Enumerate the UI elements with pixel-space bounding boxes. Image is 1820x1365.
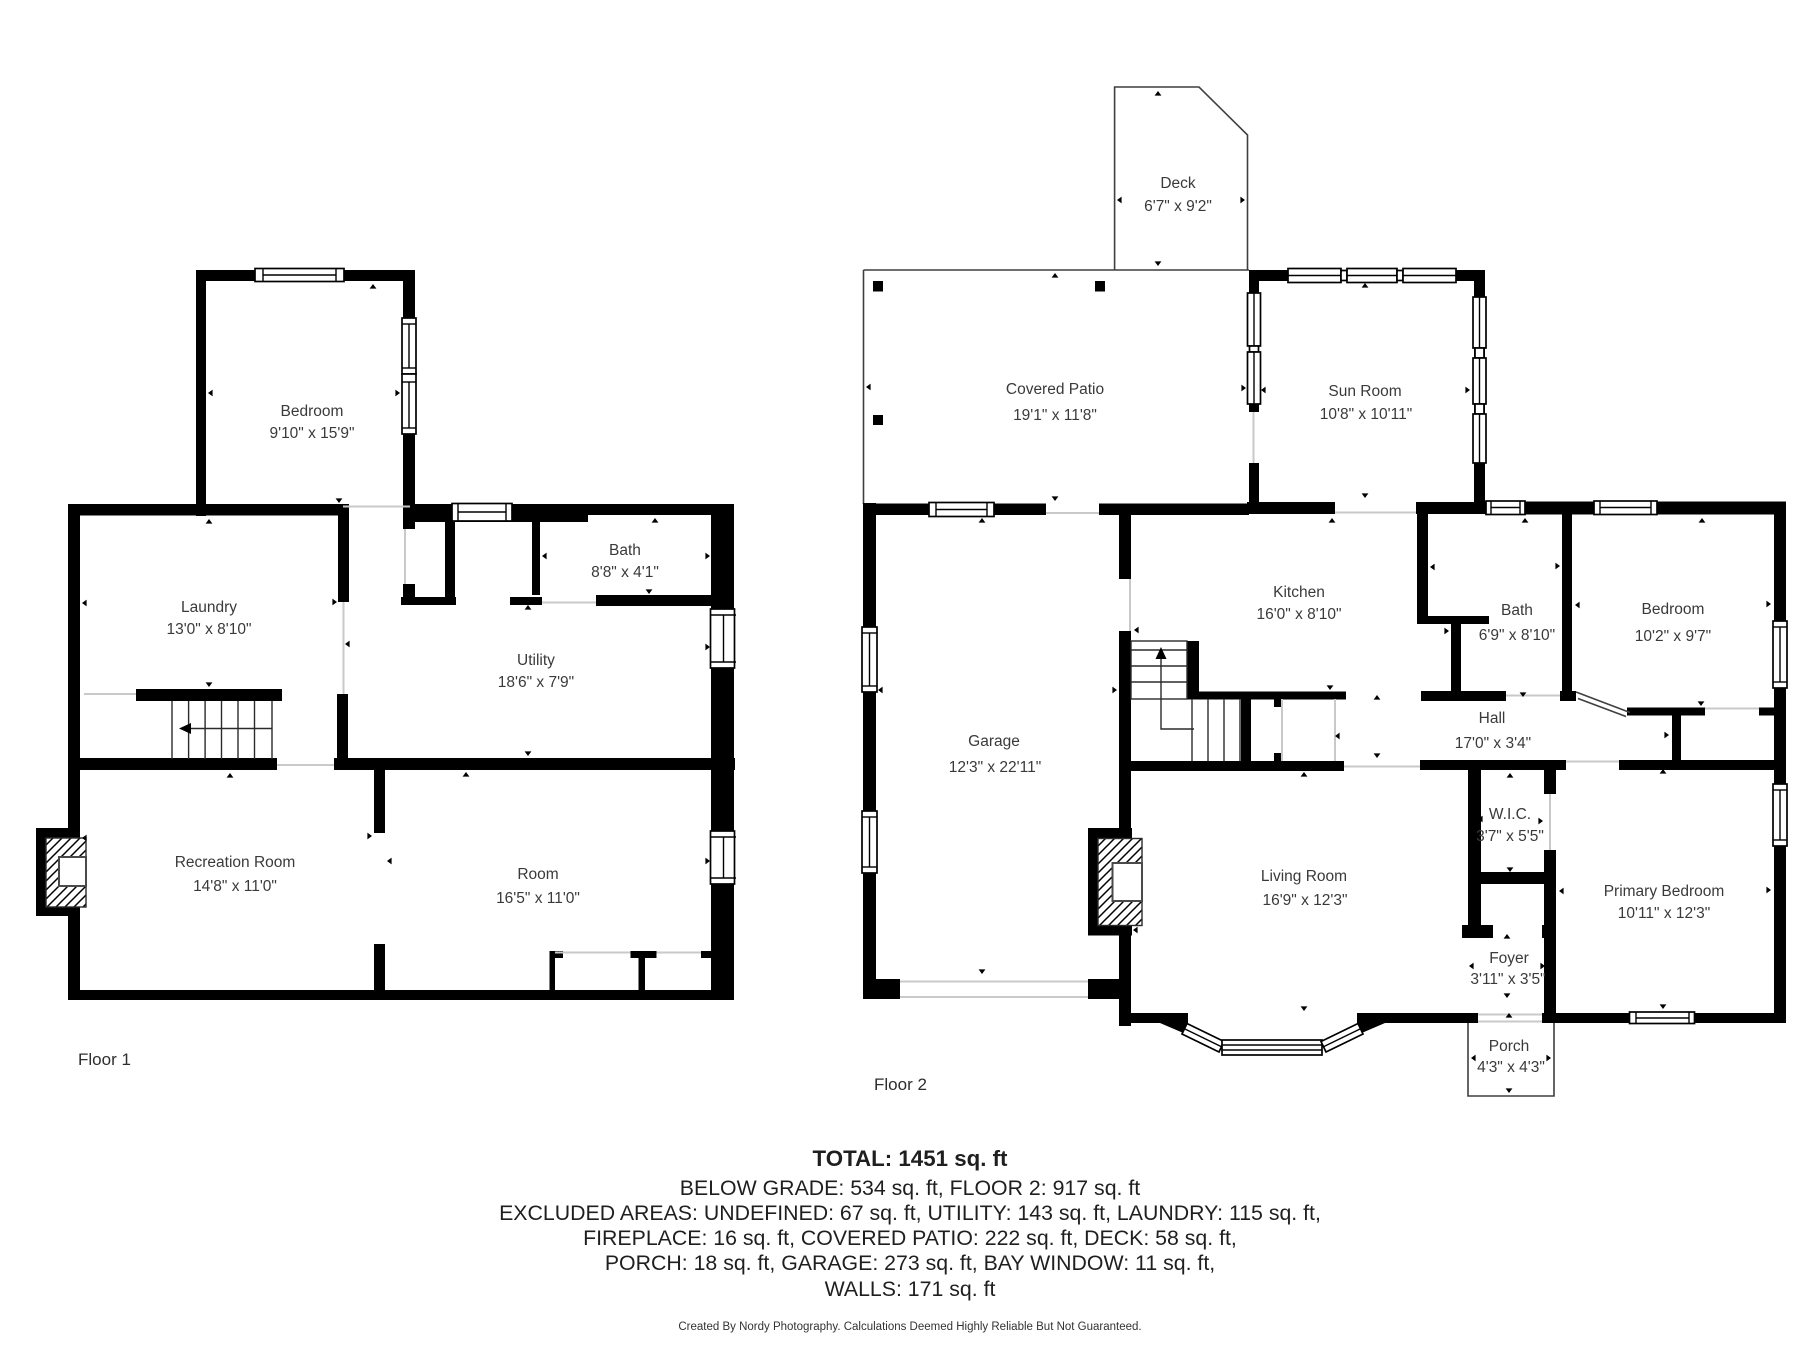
- svg-text:Bedroom: Bedroom: [281, 403, 344, 420]
- svg-text:4'3" x 4'3": 4'3" x 4'3": [1477, 1059, 1545, 1076]
- svg-text:Room: Room: [517, 866, 558, 883]
- svg-text:Living Room: Living Room: [1261, 868, 1347, 885]
- svg-text:FIREPLACE: 16 sq. ft, COVERED: FIREPLACE: 16 sq. ft, COVERED PATIO: 222…: [583, 1226, 1237, 1250]
- svg-text:Bath: Bath: [609, 542, 641, 559]
- svg-text:10'8" x 10'11": 10'8" x 10'11": [1320, 406, 1412, 423]
- svg-text:16'9" x 12'3": 16'9" x 12'3": [1262, 892, 1347, 909]
- svg-text:12'3" x 22'11": 12'3" x 22'11": [949, 759, 1041, 776]
- svg-text:BELOW GRADE: 534 sq. ft, FLOOR: BELOW GRADE: 534 sq. ft, FLOOR 2: 917 sq…: [680, 1176, 1141, 1200]
- svg-text:3'7" x 5'5": 3'7" x 5'5": [1476, 828, 1544, 845]
- svg-text:Primary Bedroom: Primary Bedroom: [1604, 883, 1725, 900]
- svg-text:Bedroom: Bedroom: [1642, 601, 1705, 618]
- svg-text:Sun Room: Sun Room: [1328, 383, 1401, 400]
- svg-text:3'11" x 3'5": 3'11" x 3'5": [1470, 971, 1545, 988]
- svg-text:PORCH: 18 sq. ft, GARAGE: 273: PORCH: 18 sq. ft, GARAGE: 273 sq. ft, BA…: [605, 1251, 1215, 1275]
- svg-text:Covered Patio: Covered Patio: [1006, 381, 1104, 398]
- svg-text:Bath: Bath: [1501, 602, 1533, 619]
- svg-text:Floor 1: Floor 1: [78, 1050, 131, 1069]
- svg-text:Recreation Room: Recreation Room: [175, 854, 296, 871]
- svg-text:W.I.C.: W.I.C.: [1489, 806, 1531, 823]
- svg-text:Utility: Utility: [517, 652, 555, 669]
- svg-text:Garage: Garage: [968, 733, 1020, 750]
- svg-text:19'1" x 11'8": 19'1" x 11'8": [1013, 407, 1097, 424]
- svg-text:Laundry: Laundry: [181, 599, 237, 616]
- svg-text:8'8" x 4'1": 8'8" x 4'1": [591, 564, 659, 581]
- svg-text:18'6" x 7'9": 18'6" x 7'9": [498, 674, 574, 691]
- svg-text:14'8" x 11'0": 14'8" x 11'0": [193, 878, 277, 895]
- svg-text:13'0" x 8'10": 13'0" x 8'10": [166, 621, 251, 638]
- svg-text:10'2" x 9'7": 10'2" x 9'7": [1635, 628, 1711, 645]
- svg-text:TOTAL: 1451 sq. ft: TOTAL: 1451 sq. ft: [813, 1146, 1008, 1171]
- svg-text:6'9" x 8'10": 6'9" x 8'10": [1479, 627, 1555, 644]
- svg-text:Kitchen: Kitchen: [1273, 584, 1325, 601]
- svg-text:Floor 2: Floor 2: [874, 1075, 927, 1094]
- svg-text:9'10" x 15'9": 9'10" x 15'9": [269, 425, 354, 442]
- svg-text:10'11" x 12'3": 10'11" x 12'3": [1618, 905, 1710, 922]
- svg-text:17'0" x 3'4": 17'0" x 3'4": [1455, 735, 1531, 752]
- svg-text:Hall: Hall: [1479, 710, 1506, 727]
- svg-text:16'5" x 11'0": 16'5" x 11'0": [496, 890, 580, 907]
- svg-text:WALLS: 171 sq. ft: WALLS: 171 sq. ft: [825, 1277, 996, 1301]
- svg-text:Deck: Deck: [1160, 175, 1196, 192]
- svg-text:Created By Nordy Photography.: Created By Nordy Photography. Calculatio…: [678, 1321, 1141, 1333]
- svg-text:EXCLUDED AREAS: UNDEFINED: 67: EXCLUDED AREAS: UNDEFINED: 67 sq. ft, UT…: [499, 1201, 1321, 1225]
- svg-text:6'7" x 9'2": 6'7" x 9'2": [1144, 198, 1212, 215]
- svg-text:Foyer: Foyer: [1489, 950, 1529, 967]
- svg-text:Porch: Porch: [1489, 1038, 1530, 1055]
- svg-text:16'0" x 8'10": 16'0" x 8'10": [1256, 606, 1341, 623]
